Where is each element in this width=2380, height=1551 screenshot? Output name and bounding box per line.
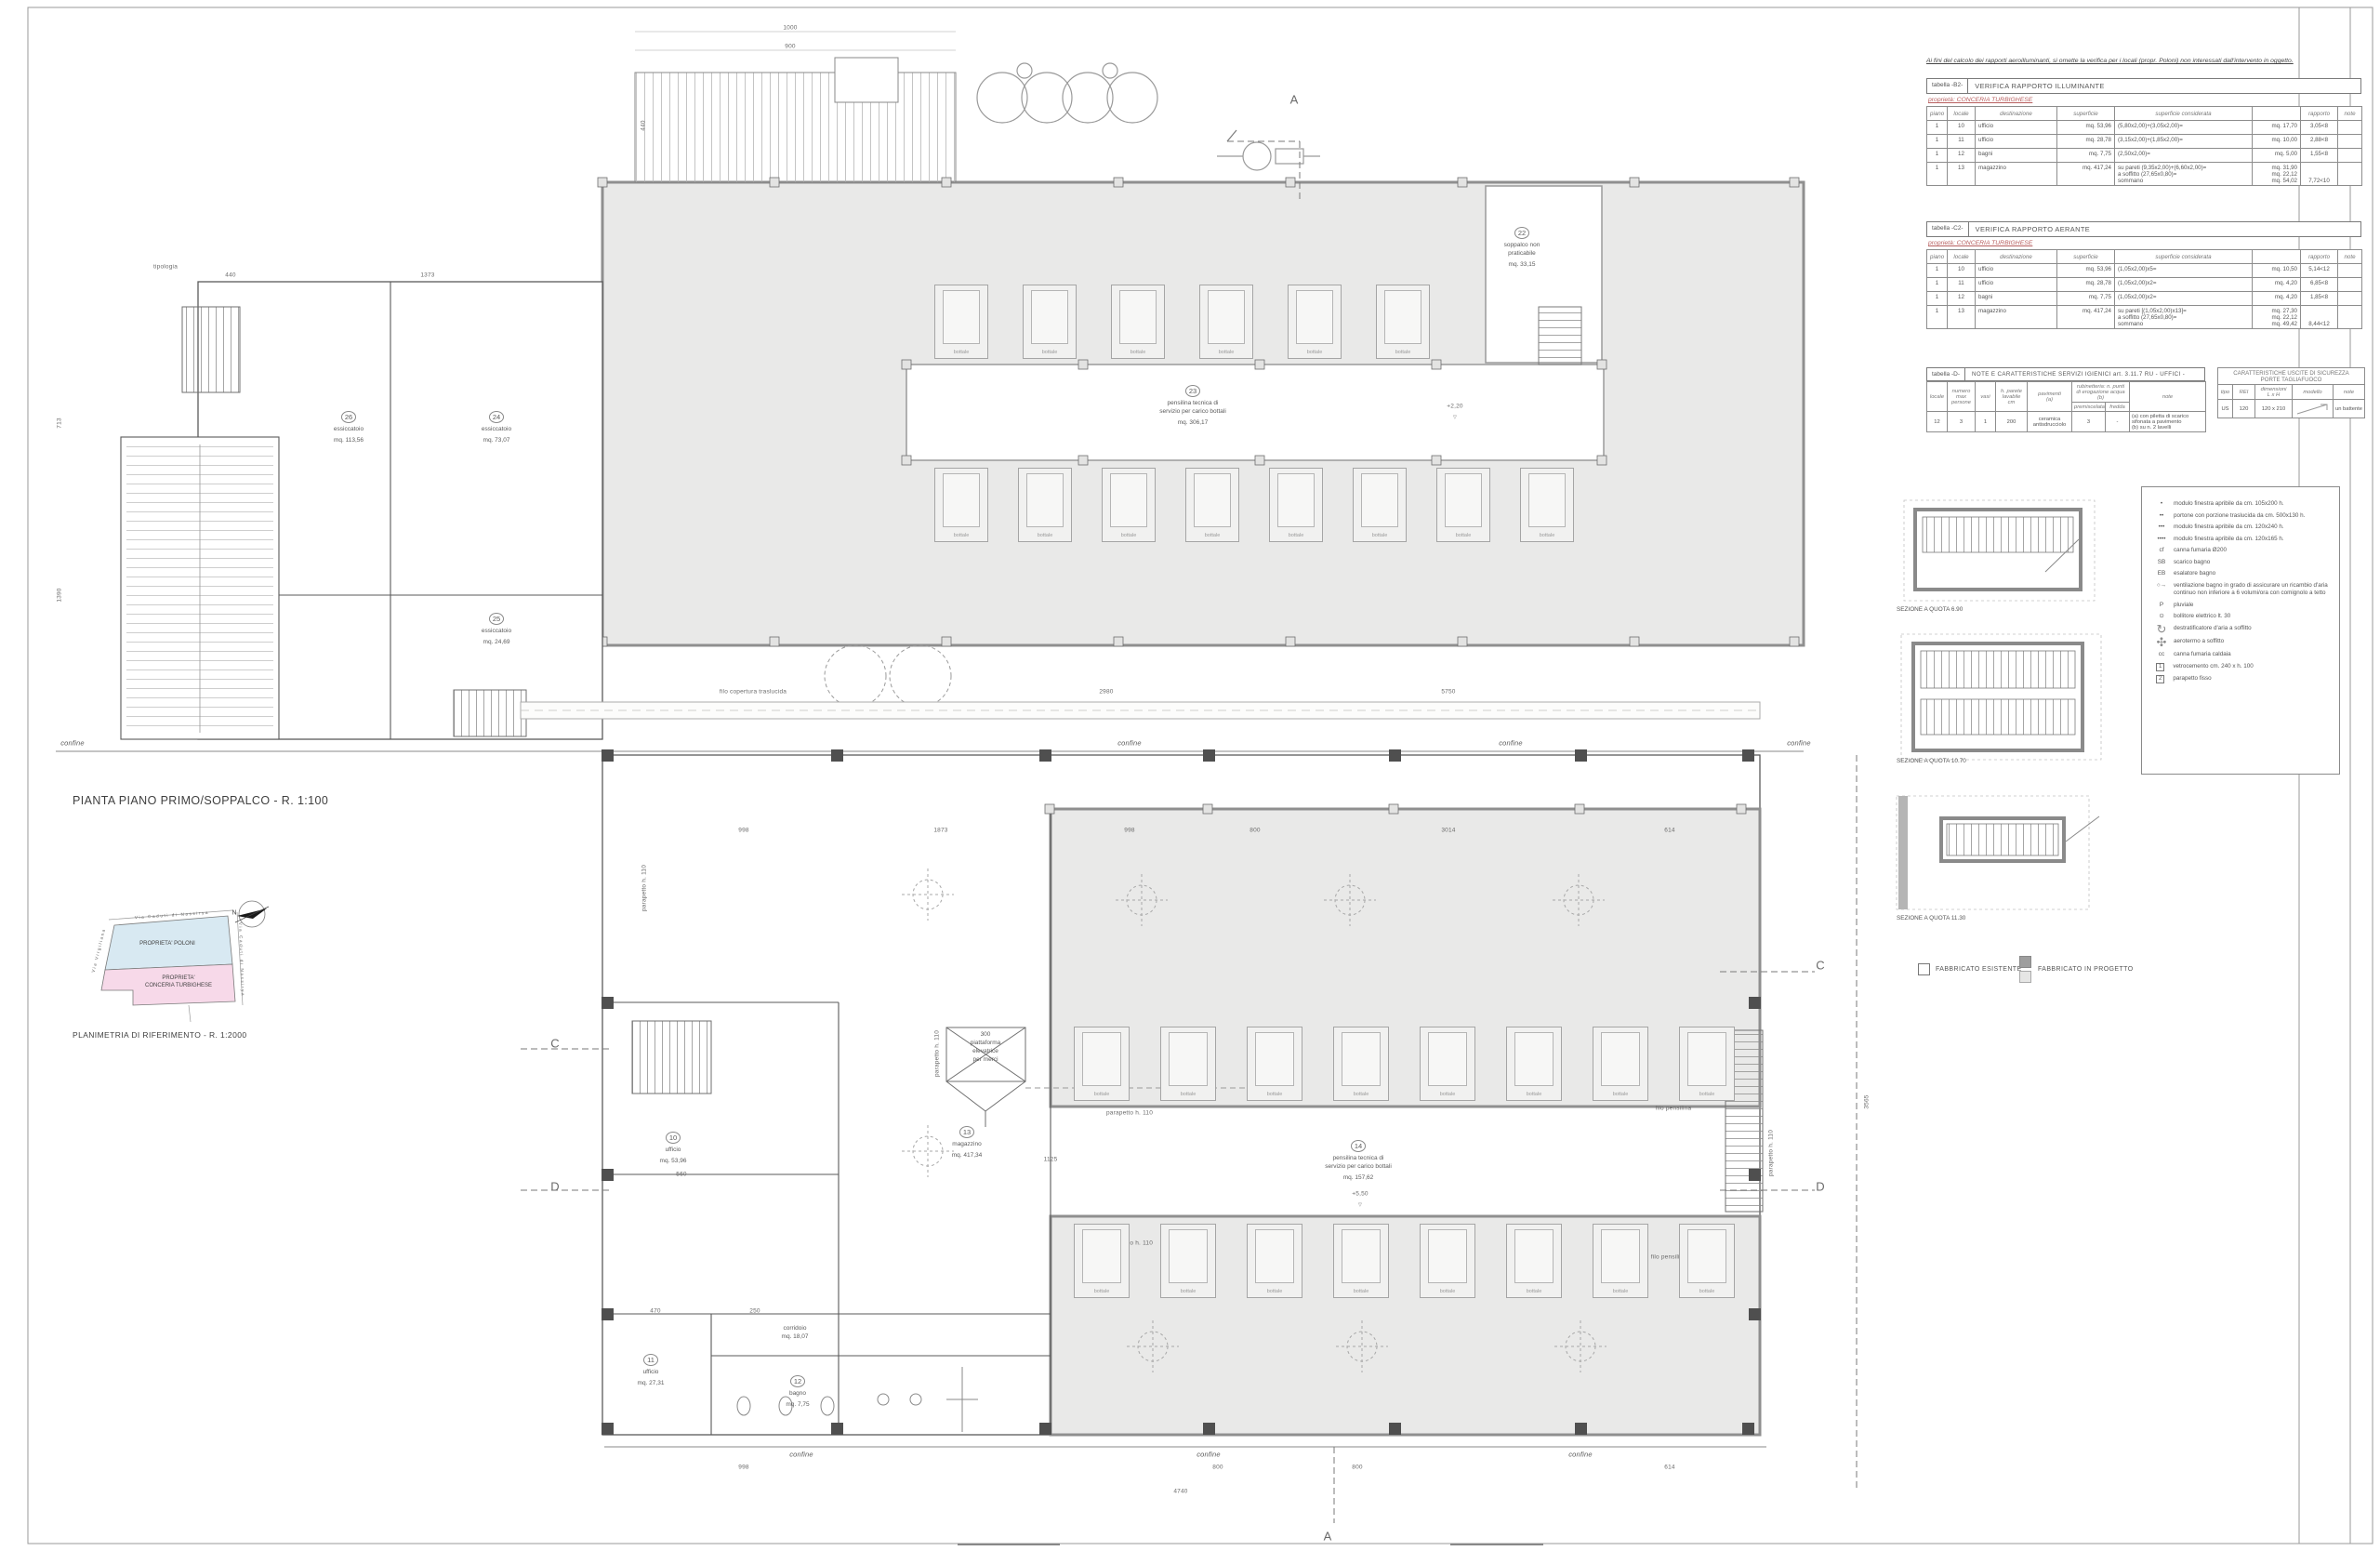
legend-text: canna fumaria caldaia <box>2174 651 2231 659</box>
table-d-grid: locale numero max persone vasi h. parete… <box>1926 381 2206 432</box>
table-cell: 1 <box>1927 278 1948 292</box>
bottale-unit: bottale <box>1247 1224 1302 1298</box>
plan-annotation: +2,20 <box>1447 404 1462 410</box>
section-caption-3: SEZIONE A QUOTA 11.30 <box>1897 915 1965 921</box>
drawing-sheet: 100090044044013737131390filo copertura t… <box>0 0 2380 1551</box>
room-label-22: 22 soppalco non praticabile mq. 33,15 <box>1448 223 1596 268</box>
bottale-unit: bottale <box>1679 1224 1735 1298</box>
room-label-24: 24 essiccatoio mq. 73,07 <box>422 407 571 444</box>
table-header-cell: note <box>2338 107 2362 121</box>
table-exits-grid: CARATTERISTICHE USCITE DI SICUREZZAPORTE… <box>2217 367 2365 418</box>
plan-annotation: confine <box>1499 739 1523 748</box>
table-header-cell: superficie considerata <box>2115 250 2253 264</box>
legend-text: esalatore bagno <box>2174 570 2215 578</box>
table-cell: 13 <box>1948 306 1976 329</box>
section-marker-letter: A <box>1324 1530 1332 1544</box>
legend-item: EBesalatore bagno <box>2149 570 2332 578</box>
bottale-unit: bottale <box>1185 468 1239 542</box>
table-row: 113magazzinomq. 417,24su pareti (9,35x2,… <box>1927 163 2362 186</box>
bottale-unit: bottale <box>1436 468 1490 542</box>
bottale-label: bottale <box>1103 533 1155 538</box>
section-caption-1: SEZIONE A QUOTA 6.90 <box>1897 606 1963 613</box>
table-cell: bagni <box>1976 149 2057 163</box>
plan-annotation: 3014 <box>1441 828 1455 834</box>
table-cell <box>2338 149 2362 163</box>
bottale-drum <box>1601 1032 1640 1086</box>
legend-item: ⊙bollitore elettrico lt. 30 <box>2149 613 2332 621</box>
bottale-drum <box>1169 1229 1208 1283</box>
plan-annotation: confine <box>789 1451 813 1459</box>
bottale-drum <box>1296 290 1333 344</box>
table-cell: ufficio <box>1976 278 2057 292</box>
bottale-unit: bottale <box>1520 468 1574 542</box>
table-cell: mq. 417,24 <box>2057 306 2115 329</box>
plan-annotation: 470 <box>650 1308 660 1315</box>
table-cell: 3,05<8 <box>2301 121 2338 135</box>
legend-symbol-icon: P <box>2149 602 2174 609</box>
table-b2-label: tabella -B2- <box>1927 79 1968 93</box>
plan-annotation: 614 <box>1664 1465 1674 1471</box>
table-cell: 1 <box>1927 135 1948 149</box>
table-cell: 12 <box>1948 292 1976 306</box>
legend-symbol-icon: 2 <box>2156 675 2164 683</box>
table-cell: 2,88<8 <box>2301 135 2338 149</box>
bottale-drum <box>1082 1032 1121 1086</box>
legend-text: scarico bagno <box>2174 559 2210 567</box>
plan-annotation: filo copertura traslucida <box>720 689 787 696</box>
room-label-corridoio: corridoio mq. 18,07 <box>721 1324 869 1341</box>
table-cell: 11 <box>1948 278 1976 292</box>
legend-symbol-icon: ↻ <box>2149 625 2174 634</box>
platform-label: 300 piattaforma elevatrice per merci <box>948 1030 1023 1064</box>
table-cell <box>2338 278 2362 292</box>
site-plan <box>84 897 279 1027</box>
parcel-poloni-label: PROPRIETA' POLONI <box>139 941 195 947</box>
bottale-label: bottale <box>1334 1289 1388 1294</box>
legend-symbol-icon: • <box>2149 500 2174 508</box>
table-cell: mq. 5,00 <box>2253 149 2301 163</box>
bottale-drum <box>1082 1229 1121 1283</box>
plan-annotation: 614 <box>1664 828 1674 834</box>
table-cell: 10 <box>1948 264 1976 278</box>
exits-title-1: CARATTERISTICHE USCITE DI SICUREZZA <box>2233 370 2348 377</box>
legend-item: 1vetrocemento cm. 240 x h. 100 <box>2149 663 2332 671</box>
bottale-label: bottale <box>1507 1289 1561 1294</box>
table-exits: CARATTERISTICHE USCITE DI SICUREZZAPORTE… <box>2217 367 2364 418</box>
room-label-13: 13 magazzino mq. 417,34 <box>892 1122 1041 1159</box>
bottale-label: bottale <box>935 533 987 538</box>
plan-annotation: 440 <box>641 120 647 130</box>
table-cell: ufficio <box>1976 264 2057 278</box>
bottale-label: bottale <box>1354 533 1406 538</box>
legend-symbol-icon: ○→ <box>2149 582 2174 590</box>
bottale-unit: bottale <box>934 285 988 359</box>
bottale-drum <box>1514 1032 1554 1086</box>
legend-item: Ppluviale <box>2149 602 2332 610</box>
bottale-unit: bottale <box>1376 285 1430 359</box>
table-cell: 1 <box>1927 121 1948 135</box>
legend-text: vetrocemento cm. 240 x h. 100 <box>2173 663 2253 671</box>
room-label-12: 12 bagno mq. 7,75 <box>723 1372 872 1408</box>
progetto-label: FABBRICATO IN PROGETTO <box>2038 966 2134 973</box>
bottale-unit: bottale <box>1679 1027 1735 1101</box>
table-cell: 8,44<12 <box>2301 306 2338 329</box>
legend-item: cfcanna fumaria Ø200 <box>2149 547 2332 555</box>
bottale-drum <box>1119 290 1157 344</box>
bottale-label: bottale <box>1270 533 1322 538</box>
exits-title-2: PORTE TAGLIAFUOCO <box>2261 377 2322 383</box>
legend-text: parapetto fisso <box>2173 675 2211 683</box>
plan-annotation: 1125 <box>1044 1157 1058 1163</box>
table-cell: 5,14<12 <box>2301 264 2338 278</box>
legend-text: modulo finestra apribile da cm. 120x240 … <box>2174 524 2284 532</box>
table-cell <box>2338 135 2362 149</box>
table-b2: tabella -B2- VERIFICA RAPPORTO ILLUMINAN… <box>1926 78 2361 186</box>
legend-symbol-icon: SB <box>2149 559 2174 566</box>
table-row: 112bagnimq. 7,75(1,05x2,00)x2=mq. 4,201,… <box>1927 292 2362 306</box>
table-row: 111ufficiomq. 28,78(3,15x2,00)+(1,85x2,0… <box>1927 135 2362 149</box>
table-c2-property: proprietà: CONCERIA TURBIGHESE <box>1928 240 2361 246</box>
bottale-drum <box>1255 1229 1294 1283</box>
table-d-title: NOTE E CARATTERISTICHE SERVIZI IGIENICI … <box>1965 368 2191 380</box>
plan-annotation: tipologia <box>153 264 178 271</box>
bottale-unit: bottale <box>1247 1027 1302 1101</box>
table-header-cell <box>2253 250 2301 264</box>
bottale-label: bottale <box>1186 533 1238 538</box>
bottale-unit: bottale <box>1074 1027 1130 1101</box>
bottale-unit: bottale <box>1111 285 1165 359</box>
bottale-drum <box>1277 473 1315 527</box>
table-header-cell: piano <box>1927 107 1948 121</box>
bottale-drum <box>1528 473 1566 527</box>
bottale-unit: bottale <box>1333 1027 1389 1101</box>
table-cell: mq. 4,20 <box>2253 278 2301 292</box>
legend-symbol-icon: cf <box>2149 547 2174 554</box>
table-cell: mq. 53,96 <box>2057 264 2115 278</box>
bottale-label: bottale <box>1593 1289 1647 1294</box>
bottale-label: bottale <box>1248 1289 1302 1294</box>
plan-annotation: 900 <box>785 44 795 50</box>
plan-annotation: confine <box>1117 739 1142 748</box>
plan-annotation: 250 <box>749 1308 760 1315</box>
bottale-label: bottale <box>935 350 987 355</box>
table-cell: 7,72<10 <box>2301 163 2338 186</box>
table-cell: (2,50x2,00)= <box>2115 149 2253 163</box>
aeroilluminanti-note: Ai fini del calcolo dei rapporti aeroill… <box>1926 58 2294 64</box>
room-label-26: 26 essiccatoio mq. 113,56 <box>274 407 423 444</box>
table-row: 112bagnimq. 7,75(2,50x2,00)=mq. 5,001,55… <box>1927 149 2362 163</box>
table-header-cell: superficie considerata <box>2115 107 2253 121</box>
table-c2: tabella -C2- VERIFICA RAPPORTO AERANTE p… <box>1926 221 2361 329</box>
bottale-label: bottale <box>1593 1092 1647 1097</box>
table-cell: ufficio <box>1976 121 2057 135</box>
plan-annotation: 3565 <box>1864 1094 1871 1108</box>
plan-annotation: +5,50 <box>1352 1191 1368 1198</box>
table-cell: (1,05x2,00)x2= <box>2115 278 2253 292</box>
section-marker-letter: C <box>1816 959 1825 973</box>
plan-annotation: filo pensilina <box>1656 1106 1692 1112</box>
bottale-label: bottale <box>1521 533 1573 538</box>
table-row: 113magazzinomq. 417,24su pareti [(1,05x2… <box>1927 306 2362 329</box>
table-header-cell: rapporto <box>2301 107 2338 121</box>
table-cell: (1,05x2,00)x5= <box>2115 264 2253 278</box>
legend-symbol-icon: ••• <box>2149 524 2174 531</box>
table-b2-title: VERIFICA RAPPORTO ILLUMINANTE <box>1968 79 2110 93</box>
plan-title: PIANTA PIANO PRIMO/SOPPALCO - R. 1:100 <box>73 794 328 807</box>
plan-annotation: 800 <box>1249 828 1260 834</box>
parcel-conceria-label-1: PROPRIETA' <box>162 975 194 981</box>
bottale-unit: bottale <box>1199 285 1253 359</box>
parcel-conceria-label-2: CONCERIA TURBIGHESE <box>145 983 212 988</box>
table-b2-grid: pianolocaledestinazionesuperficiesuperfi… <box>1926 106 2362 186</box>
table-cell <box>2338 163 2362 186</box>
plan-annotation: confine <box>60 739 85 748</box>
bottale-label: bottale <box>1421 1092 1474 1097</box>
bottale-unit: bottale <box>1018 468 1072 542</box>
bottale-label: bottale <box>1507 1092 1561 1097</box>
bottale-unit: bottale <box>1023 285 1077 359</box>
legend-text: bollitore elettrico lt. 30 <box>2174 613 2230 621</box>
table-d-label: tabella -D- <box>1927 368 1965 380</box>
room-label-11: 11 ufficio mq. 27,31 <box>576 1350 725 1386</box>
bottale-label: bottale <box>1161 1092 1215 1097</box>
table-cell <box>2338 292 2362 306</box>
bottale-unit: bottale <box>1102 468 1156 542</box>
bottale-label: bottale <box>1421 1289 1474 1294</box>
table-header-cell: locale <box>1948 107 1976 121</box>
table-cell: 10 <box>1948 121 1976 135</box>
bottale-unit: bottale <box>1074 1224 1130 1298</box>
table-header-cell: destinazione <box>1976 107 2057 121</box>
esistente-swatch <box>1918 963 1930 975</box>
legend-symbol-icon: ✣ <box>2149 638 2174 647</box>
plan-annotation: 1000 <box>783 25 797 32</box>
plan-annotation: confine <box>1568 1451 1593 1459</box>
bottale-label: bottale <box>1019 533 1071 538</box>
legend-item: ○→ventilazione bagno in grado di assicur… <box>2149 582 2332 598</box>
table-cell: mq. 27,30 mq. 22,12 mq. 49,42 <box>2253 306 2301 329</box>
table-cell: magazzino <box>1976 163 2057 186</box>
table-row: 110ufficiomq. 53,96(5,80x2,00)+(3,05x2,0… <box>1927 121 2362 135</box>
table-row: 110ufficiomq. 53,96(1,05x2,00)x5=mq. 10,… <box>1927 264 2362 278</box>
table-cell: 1 <box>1927 264 1948 278</box>
table-cell: (1,05x2,00)x2= <box>2115 292 2253 306</box>
room-label-10: 10 ufficio mq. 53,96 <box>599 1128 747 1164</box>
bottale-unit: bottale <box>1160 1224 1216 1298</box>
bottale-label: bottale <box>1075 1289 1129 1294</box>
legend-symbol-icon: •••• <box>2149 536 2174 543</box>
table-cell: mq. 17,70 <box>2253 121 2301 135</box>
table-cell: mq. 4,20 <box>2253 292 2301 306</box>
plan-annotation: 560 <box>676 1172 686 1178</box>
esistente-label: FABBRICATO ESISTENTE <box>1936 966 2022 973</box>
table-header-cell: superficie <box>2057 250 2115 264</box>
table-cell: mq. 417,24 <box>2057 163 2115 186</box>
legend-item: ✣aerotermo a soffitto <box>2149 638 2332 647</box>
plan-annotation: parapetto h. 110 <box>934 1030 941 1077</box>
bottale-unit: bottale <box>1593 1027 1648 1101</box>
legend-item: ••portone con porzione traslucida da cm.… <box>2149 512 2332 521</box>
table-cell: (5,80x2,00)+(3,05x2,00)= <box>2115 121 2253 135</box>
bottale-label: bottale <box>1075 1092 1129 1097</box>
bottale-unit: bottale <box>1269 468 1323 542</box>
table-b2-property: proprietà: CONCERIA TURBIGHESE <box>1928 97 2361 103</box>
table-c2-label: tabella -C2- <box>1927 222 1969 236</box>
table-cell: su pareti [(1,05x2,00)x13]= a soffitto (… <box>2115 306 2253 329</box>
bottale-label: bottale <box>1289 350 1341 355</box>
room-label-23: 23 pensilina tecnica di servizio per car… <box>1118 381 1267 426</box>
symbols-legend: •modulo finestra apribile da cm. 105x200… <box>2141 486 2340 775</box>
bottale-drum <box>1428 1229 1467 1283</box>
bottale-drum <box>1687 1229 1726 1283</box>
bottale-drum <box>1208 290 1245 344</box>
bottale-drum <box>1342 1032 1381 1086</box>
legend-item: ↻destratificatore d'aria a soffitto <box>2149 625 2332 634</box>
progetto-swatch-dark <box>2019 956 2031 968</box>
bottale-unit: bottale <box>1353 468 1407 542</box>
progetto-swatch-light <box>2019 971 2031 983</box>
plan-annotation: 998 <box>738 828 748 834</box>
bottale-label: bottale <box>1248 1092 1302 1097</box>
bottale-drum <box>943 473 980 527</box>
table-cell: 1 <box>1927 292 1948 306</box>
plan-annotation: ▽ <box>1358 1202 1362 1208</box>
table-cell: mq. 7,75 <box>2057 149 2115 163</box>
legend-item: 2parapetto fisso <box>2149 675 2332 683</box>
legend-text: ventilazione bagno in grado di assicurar… <box>2174 582 2332 598</box>
legend-item: •••modulo finestra apribile da cm. 120x2… <box>2149 524 2332 532</box>
plan-annotation: 800 <box>1352 1465 1362 1471</box>
legend-text: aerotermo a soffitto <box>2174 638 2224 646</box>
bottale-label: bottale <box>1334 1092 1388 1097</box>
plan-annotation: 440 <box>225 272 235 279</box>
bottale-label: bottale <box>1112 350 1164 355</box>
bottale-drum <box>1255 1032 1294 1086</box>
legend-symbol-icon: ⊙ <box>2149 613 2174 620</box>
table-header-cell: destinazione <box>1976 250 2057 264</box>
table-cell: mq. 28,78 <box>2057 278 2115 292</box>
table-cell <box>2338 121 2362 135</box>
bottale-drum <box>1428 1032 1467 1086</box>
table-cell: 1 <box>1927 163 1948 186</box>
bottale-label: bottale <box>1437 533 1489 538</box>
table-cell: 12 <box>1948 149 1976 163</box>
bottale-drum <box>1514 1229 1554 1283</box>
table-cell: mq. 31,90 mq. 22,12 mq. 54,02 <box>2253 163 2301 186</box>
exits-model-sketch <box>2293 400 2334 418</box>
table-header-cell: note <box>2338 250 2362 264</box>
table-cell: mq. 28,78 <box>2057 135 2115 149</box>
legend-text: modulo finestra apribile da cm. 120x165 … <box>2174 536 2284 544</box>
table-cell: bagni <box>1976 292 2057 306</box>
plan-annotation: 713 <box>57 418 63 428</box>
plan-annotation: confine <box>1787 739 1811 748</box>
plan-annotation: 800 <box>1212 1465 1223 1471</box>
plan-annotation: 998 <box>738 1465 748 1471</box>
table-cell: mq. 10,00 <box>2253 135 2301 149</box>
bottale-unit: bottale <box>1160 1027 1216 1101</box>
bottale-drum <box>943 290 980 344</box>
site-plan-caption: PLANIMETRIA DI RIFERIMENTO - R. 1:2000 <box>73 1030 246 1040</box>
bottale-drum <box>1384 290 1421 344</box>
bottale-drum <box>1601 1229 1640 1283</box>
table-header-cell <box>2253 107 2301 121</box>
legend-text: destratificatore d'aria a soffitto <box>2174 625 2252 633</box>
bottale-unit: bottale <box>1506 1224 1562 1298</box>
legend-text: canna fumaria Ø200 <box>2174 547 2227 555</box>
legend-text: portone con porzione traslucida da cm. 5… <box>2174 512 2305 521</box>
legend-symbol-icon: EB <box>2149 570 2174 577</box>
legend-symbol-icon: 1 <box>2156 663 2164 671</box>
bottale-drum <box>1445 473 1482 527</box>
table-cell: mq. 7,75 <box>2057 292 2115 306</box>
legend-symbol-icon: •• <box>2149 512 2174 520</box>
plan-annotation: 5750 <box>1441 689 1455 696</box>
table-cell: su pareti (9,35x2,00)+(6,60x2,00)= a sof… <box>2115 163 2253 186</box>
table-cell: ufficio <box>1976 135 2057 149</box>
table-cell: (3,15x2,00)+(1,85x2,00)= <box>2115 135 2253 149</box>
table-header-cell: piano <box>1927 250 1948 264</box>
plan-annotation: confine <box>1197 1451 1221 1459</box>
plan-annotation: ▽ <box>1453 415 1457 420</box>
plan-annotation: 1873 <box>933 828 947 834</box>
section-marker-letter: A <box>1290 93 1299 107</box>
section-marker-letter: C <box>550 1037 560 1051</box>
table-cell: 13 <box>1948 163 1976 186</box>
plan-annotation: 998 <box>1124 828 1134 834</box>
table-d: tabella -D- NOTE E CARATTERISTICHE SERVI… <box>1926 367 2205 432</box>
table-cell <box>2338 306 2362 329</box>
table-cell: mq. 53,96 <box>2057 121 2115 135</box>
plan-annotation: 1390 <box>57 588 63 602</box>
table-header-cell: superficie <box>2057 107 2115 121</box>
plan-annotation: 1373 <box>420 272 434 279</box>
plan-annotation: 4740 <box>1173 1489 1187 1495</box>
table-row: 111ufficiomq. 28,78(1,05x2,00)x2=mq. 4,2… <box>1927 278 2362 292</box>
bottale-unit: bottale <box>1420 1027 1475 1101</box>
bottale-unit: bottale <box>1506 1027 1562 1101</box>
room-label-14: 14 pensilina tecnica di servizio per car… <box>1284 1136 1433 1181</box>
section-caption-2: SEZIONE A QUOTA 10.70 <box>1897 758 1966 764</box>
table-cell: 11 <box>1948 135 1976 149</box>
bottale-drum <box>1361 473 1398 527</box>
table-cell: 6,85<8 <box>2301 278 2338 292</box>
legend-item: SBscarico bagno <box>2149 559 2332 567</box>
bottale-label: bottale <box>1161 1289 1215 1294</box>
table-cell: magazzino <box>1976 306 2057 329</box>
bottale-label: bottale <box>1680 1289 1734 1294</box>
section-marker-letter: D <box>1816 1180 1825 1194</box>
bottale-unit: bottale <box>1420 1224 1475 1298</box>
bottale-label: bottale <box>1377 350 1429 355</box>
table-cell: 1 <box>1927 306 1948 329</box>
legend-item: cccanna fumaria caldaia <box>2149 651 2332 659</box>
plan-annotation: parapetto h. 110 <box>1106 1110 1153 1117</box>
bottale-drum <box>1110 473 1147 527</box>
bottale-drum <box>1031 290 1068 344</box>
legend-symbol-icon: cc <box>2149 651 2174 658</box>
legend-item: •modulo finestra apribile da cm. 105x200… <box>2149 500 2332 509</box>
bottale-unit: bottale <box>1333 1224 1389 1298</box>
bottale-drum <box>1169 1032 1208 1086</box>
bottale-label: bottale <box>1680 1092 1734 1097</box>
bottale-unit: bottale <box>1593 1224 1648 1298</box>
section-marker-letter: D <box>550 1180 560 1194</box>
table-header-cell: rapporto <box>2301 250 2338 264</box>
table-c2-grid: pianolocaledestinazionesuperficiesuperfi… <box>1926 249 2362 329</box>
table-cell: 1 <box>1927 149 1948 163</box>
table-c2-title: VERIFICA RAPPORTO AERANTE <box>1969 222 2097 236</box>
